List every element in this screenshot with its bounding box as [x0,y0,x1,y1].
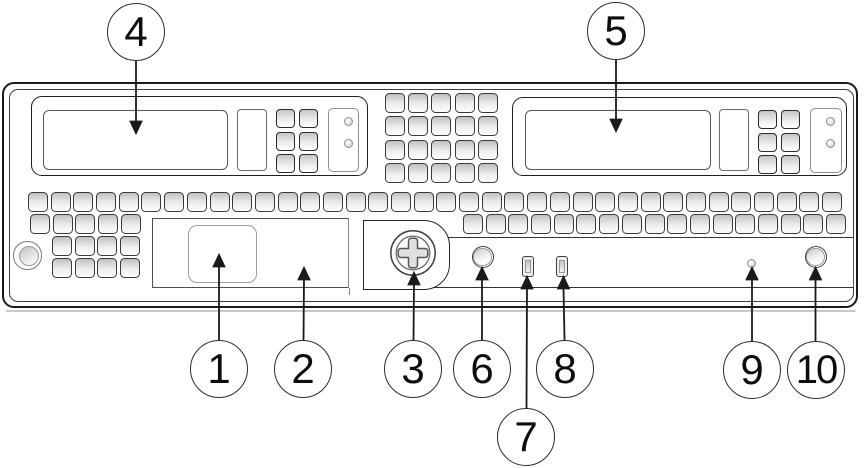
status-led [747,259,756,268]
vent-hole [799,192,819,212]
keypad-button [299,109,318,128]
vent-row-3 [52,236,140,256]
vent-hole [414,192,434,212]
vent-hole [120,258,140,278]
vent-hole [385,140,405,160]
callout-8-label: 8 [553,348,576,390]
vent-hole [75,236,95,256]
right-keypad [758,110,800,174]
vent-hole [576,214,596,234]
vent-hole [187,192,207,212]
ground-terminal-knob [13,241,42,270]
keypad-button [781,133,800,152]
thumbscrew-icon [389,229,437,277]
keypad-button [299,154,318,173]
vent-hole [431,116,451,136]
vent-hole [368,192,388,212]
callout-5: 5 [587,2,645,60]
vent-row-1 [28,192,842,212]
keypad-button [781,155,800,174]
callout-2: 2 [274,340,332,398]
vent-hole [667,214,687,234]
callout-5-label: 5 [604,10,627,52]
right-led-panel [810,108,842,173]
callout-6: 6 [453,340,511,398]
vent-hole [478,140,498,160]
keypad-button [276,154,295,173]
vent-row-2-left [30,214,141,234]
vent-hole [622,214,642,234]
vent-hole [121,214,141,234]
vent-hole [690,214,710,234]
vent-hole [504,192,524,212]
knob-cap [19,246,39,266]
callout-3: 3 [384,340,442,398]
right-display-window [525,110,711,170]
vent-hole [508,214,528,234]
keypad-button [758,155,777,174]
left-display-module [31,96,368,176]
vent-hole [595,192,615,212]
callout-7: 7 [497,408,555,466]
vent-hole [52,258,72,278]
usb-port-2 [556,256,568,277]
vent-hole [463,214,483,234]
vent-hole [455,140,475,160]
callout-10: 10 [787,341,845,399]
vent-row-2-right [463,214,846,234]
vent-hole [255,192,275,212]
front-panel-diagram: 4 5 1 2 3 6 7 8 9 10 [0,0,864,468]
vent-hole [323,192,343,212]
vent-hole [300,192,320,212]
power-button-cap [473,248,492,267]
keypad-button [299,132,318,151]
vent-hole [478,163,498,183]
vent-hole [459,192,479,212]
vent-hole [385,116,405,136]
keypad-button [781,110,800,129]
vent-hole [527,192,547,212]
vent-hole [408,163,428,183]
vent-hole [478,116,498,136]
vent-hole [663,192,683,212]
module-connector [188,225,257,283]
vent-hole [73,192,93,212]
vent-hole [97,236,117,256]
callout-4-label: 4 [124,11,147,53]
right-softkey-panel [719,109,749,171]
vent-hole [75,258,95,278]
vent-hole [455,163,475,183]
callout-1: 1 [190,340,248,398]
vent-hole [781,214,801,234]
vent-hole [391,192,411,212]
vent-hole [599,214,619,234]
callout-8: 8 [536,340,594,398]
left-display-window [43,110,228,170]
callout-4: 4 [107,3,165,61]
chassis-shadow [6,310,856,312]
vent-hole [232,192,252,212]
vent-hole [210,192,230,212]
vent-hole [119,192,139,212]
vent-hole [826,214,846,234]
center-vent-grid [385,93,498,183]
vent-hole [731,192,751,212]
standby-button [805,246,827,268]
standby-button-cap [806,248,825,267]
vent-hole [52,236,72,256]
power-button [472,246,494,268]
callout-3-label: 3 [401,348,424,390]
vent-hole [641,192,661,212]
callout-6-label: 6 [470,348,493,390]
vent-hole [408,140,428,160]
vent-hole [385,163,405,183]
vent-hole [645,214,665,234]
callout-2-label: 2 [291,348,314,390]
callout-9-label: 9 [740,349,763,391]
bay-divider [349,288,350,295]
callout-7-label: 7 [514,416,537,458]
vent-hole [686,192,706,212]
vent-hole [278,192,298,212]
led-indicator [344,139,353,148]
vent-hole [408,93,428,113]
vent-hole [53,214,73,234]
vent-hole [431,93,451,113]
vent-hole [735,214,755,234]
usb-slot [525,260,531,273]
vent-hole [455,93,475,113]
callout-1-label: 1 [207,348,230,390]
vent-hole [482,192,502,212]
left-led-panel [328,108,359,172]
vent-hole [550,192,570,212]
callout-10-label: 10 [796,350,837,390]
vent-hole [98,214,118,234]
vent-hole [385,93,405,113]
vent-hole [754,192,774,212]
keypad-button [276,109,295,128]
vent-hole [777,192,797,212]
vent-hole [120,236,140,256]
callout-9: 9 [723,341,781,399]
led-indicator [344,117,353,126]
vent-hole [455,116,475,136]
led-indicator [826,117,835,126]
vent-hole [75,214,95,234]
vent-hole [436,192,456,212]
vent-hole [531,214,551,234]
vent-hole [431,140,451,160]
usb-slot [559,260,565,273]
vent-hole [141,192,161,212]
left-softkey-panel [237,109,267,171]
vent-hole [96,192,116,212]
vent-hole [346,192,366,212]
keypad-button [758,133,777,152]
vent-hole [28,192,48,212]
vent-hole [803,214,823,234]
led-indicator [826,139,835,148]
right-display-module [512,97,847,176]
vent-hole [51,192,71,212]
keypad-button [276,132,295,151]
usb-port-1 [522,256,534,277]
vent-hole [822,192,842,212]
vent-hole [618,192,638,212]
vent-hole [573,192,593,212]
vent-hole [554,214,574,234]
vent-row-4 [52,258,140,278]
vent-hole [478,93,498,113]
vent-hole [709,192,729,212]
vent-hole [486,214,506,234]
vent-hole [164,192,184,212]
vent-hole [97,258,117,278]
vent-hole [758,214,778,234]
left-keypad [276,109,318,173]
vent-hole [408,116,428,136]
vent-hole [30,214,50,234]
keypad-button [758,110,777,129]
vent-hole [713,214,733,234]
vent-hole [431,163,451,183]
